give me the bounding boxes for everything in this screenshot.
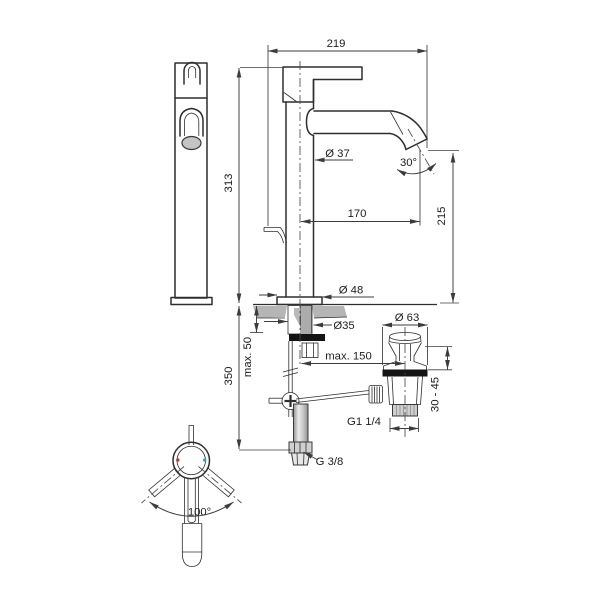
mounting-nut <box>302 343 318 358</box>
dim-spout-reach: 170 <box>348 208 367 220</box>
waste-assembly <box>369 333 428 417</box>
dim-spout-angle: 30° <box>400 157 417 169</box>
aerator-outlet <box>182 137 201 150</box>
faucet-side-view <box>264 67 427 305</box>
actuating-rod <box>296 391 369 400</box>
hose-nut <box>289 442 312 453</box>
dimension-labels: 219 313 Ø 37 30° 170 215 Ø 48 Ø35 max. 5… <box>188 38 448 519</box>
dimension-lines <box>239 45 459 460</box>
hot-indicator-dot <box>176 458 179 461</box>
cartridge-cap-and-lever <box>283 67 362 102</box>
spout-side <box>307 109 428 150</box>
dim-deck-thickness: max. 50 <box>242 337 254 377</box>
dim-shank-diameter: Ø35 <box>333 320 354 332</box>
dim-supply-thread: G 3/8 <box>316 456 344 468</box>
dim-body-diameter: Ø 37 <box>325 148 350 160</box>
dim-waste-distance: max. 150 <box>325 351 371 363</box>
dim-hose-length: 350 <box>223 367 235 386</box>
hose-hex-connector <box>292 453 310 465</box>
faucet-top-view <box>142 426 242 567</box>
faucet-front-view <box>171 63 212 305</box>
handle-top <box>182 477 202 567</box>
rubber-gasket <box>289 334 325 341</box>
cold-indicator-dot <box>203 458 206 461</box>
dim-waste-cap-diameter: Ø 63 <box>395 312 420 324</box>
rod-connector-nut <box>369 386 383 404</box>
dim-base-diameter: Ø 48 <box>339 285 364 297</box>
dim-waste-clamp-range: 30 - 45 <box>430 377 442 412</box>
dim-swivel-angle: 100° <box>188 507 211 519</box>
dim-waste-thread: G1 1/4 <box>347 416 381 428</box>
center-lines <box>300 61 434 437</box>
base-flange <box>277 297 322 305</box>
technical-drawing-canvas: 219 313 Ø 37 30° 170 215 Ø 48 Ø35 max. 5… <box>0 0 603 603</box>
pop-up-knob <box>264 228 287 244</box>
dim-outlet-height: 215 <box>436 207 448 226</box>
dim-total-projection: 219 <box>327 38 346 50</box>
dim-total-height: 313 <box>223 174 235 193</box>
handle-front-outline <box>184 63 200 84</box>
